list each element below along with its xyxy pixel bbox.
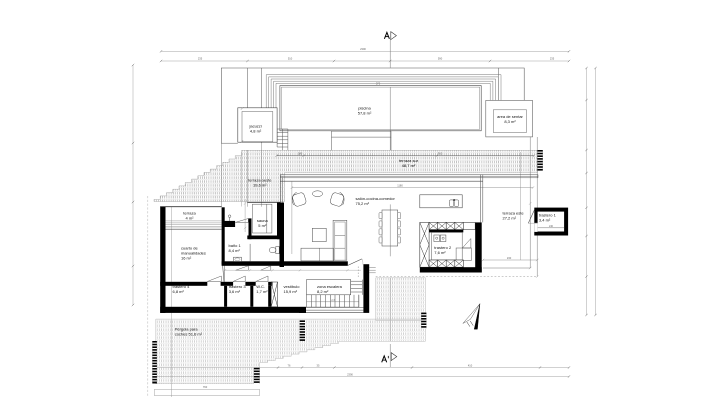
svg-text:180: 180 <box>298 152 303 156</box>
svg-text:760: 760 <box>203 385 208 389</box>
svg-text:48,7 m²: 48,7 m² <box>402 163 416 168</box>
svg-text:1,7 m²: 1,7 m² <box>256 289 268 294</box>
svg-text:910: 910 <box>438 152 443 156</box>
svg-text:15,9 m²: 15,9 m² <box>284 289 298 294</box>
svg-text:27,2 m²: 27,2 m² <box>503 215 517 220</box>
svg-text:230: 230 <box>507 256 512 260</box>
svg-text:16 m²: 16 m² <box>181 256 192 261</box>
svg-text:3,4 m²: 3,4 m² <box>539 218 551 223</box>
svg-text:coches 51,6 m²: coches 51,6 m² <box>175 332 203 337</box>
svg-text:1180: 1180 <box>397 183 403 187</box>
svg-text:8,2 m²: 8,2 m² <box>317 289 329 294</box>
svg-text:240: 240 <box>549 225 554 228</box>
svg-text:575: 575 <box>376 82 381 86</box>
svg-text:410: 410 <box>468 363 473 367</box>
svg-text:4,8 m²: 4,8 m² <box>250 129 262 134</box>
svg-text:235: 235 <box>198 57 203 61</box>
svg-text:5 m²: 5 m² <box>258 223 267 228</box>
svg-text:2390: 2390 <box>360 47 366 51</box>
svg-text:57,8 m²: 57,8 m² <box>358 111 372 116</box>
svg-text:510: 510 <box>288 57 293 61</box>
svg-text:2390: 2390 <box>347 372 353 376</box>
svg-text:6,8 m²: 6,8 m² <box>173 289 185 294</box>
svg-text:8,4 m²: 8,4 m² <box>229 248 241 253</box>
svg-text:7,6 m²: 7,6 m² <box>434 250 446 255</box>
svg-text:4 m²: 4 m² <box>186 216 195 221</box>
svg-text:75,2 m²: 75,2 m² <box>356 201 370 206</box>
svg-text:8,3 m²: 8,3 m² <box>504 119 516 124</box>
svg-text:235: 235 <box>550 57 555 61</box>
svg-text:590: 590 <box>438 57 443 61</box>
svg-text:19,6 m²: 19,6 m² <box>253 182 267 187</box>
svg-text:3,6 m²: 3,6 m² <box>229 289 241 294</box>
